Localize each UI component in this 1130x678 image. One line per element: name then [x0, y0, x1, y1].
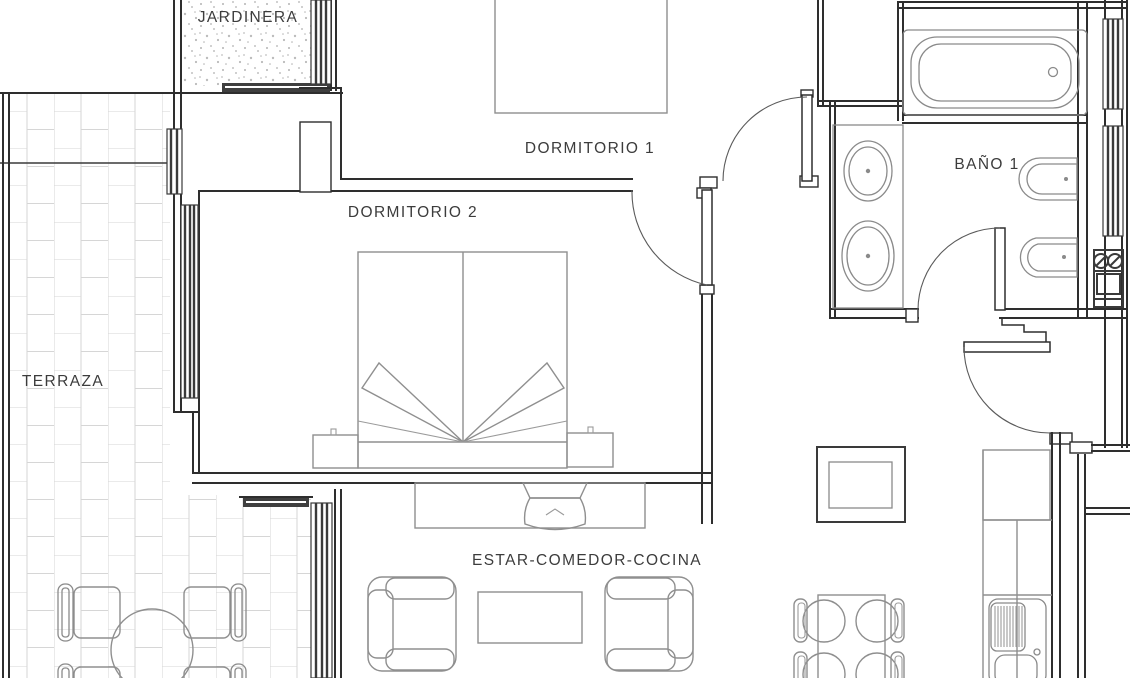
- dining-set: [794, 595, 904, 678]
- room-label-estar-comedor-cocina: ESTAR-COMEDOR-COCINA: [472, 552, 702, 569]
- window: [311, 0, 331, 84]
- door-leaf: [702, 190, 712, 285]
- bathtub: [903, 30, 1087, 115]
- room-dormitorio-1: DORMITORIO 1: [495, 0, 812, 181]
- window: [181, 205, 198, 398]
- double-bed: [358, 252, 567, 468]
- door-swing: [918, 228, 1000, 310]
- room-label-dormitorio-2: DORMITORIO 2: [348, 204, 478, 221]
- washer-unit: [1094, 250, 1123, 307]
- door-leaf: [995, 228, 1005, 310]
- window: [167, 129, 182, 194]
- coffee-table: [478, 592, 582, 643]
- toilet: [1020, 238, 1077, 277]
- room-label-dormitorio-1: DORMITORIO 1: [525, 140, 655, 157]
- vanity-counter: [833, 125, 903, 308]
- room-label-bano-1: BAÑO 1: [954, 156, 1019, 173]
- armchair: [605, 577, 693, 671]
- fridge: [983, 450, 1050, 520]
- door-swing: [964, 347, 1050, 433]
- window: [1103, 126, 1123, 236]
- entrance-door: [964, 342, 1050, 433]
- tv-console: [415, 483, 645, 528]
- room-bano-1: BAÑO 1: [833, 30, 1123, 310]
- tv: [523, 483, 587, 530]
- door-swing: [632, 190, 707, 285]
- room-label-terraza: TERRAZA: [22, 373, 104, 390]
- dining-chair: [803, 600, 845, 642]
- cooktop-island: [817, 447, 905, 522]
- room-label-jardinera: JARDINERA: [198, 9, 298, 26]
- single-bed: [495, 0, 667, 113]
- washbasin: [844, 141, 892, 201]
- door-swing: [723, 97, 807, 181]
- door-leaf: [802, 95, 812, 181]
- room-dormitorio-2: DORMITORIO 2: [313, 190, 712, 468]
- bidet: [1019, 158, 1077, 200]
- nightstand: [313, 429, 358, 468]
- floor-plan: TERRAZA JARDINERA: [0, 0, 1130, 678]
- armchair: [368, 577, 456, 671]
- washbasin: [842, 221, 894, 291]
- room-jardinera: JARDINERA: [183, 0, 330, 92]
- room-estar-comedor-cocina: ESTAR-COMEDOR-COCINA: [368, 447, 1052, 678]
- kitchen-counter: [983, 450, 1052, 678]
- dining-chair: [803, 653, 845, 678]
- window: [1103, 19, 1123, 109]
- nightstand: [567, 427, 613, 467]
- dining-table: [818, 595, 885, 678]
- door-leaf: [964, 342, 1050, 352]
